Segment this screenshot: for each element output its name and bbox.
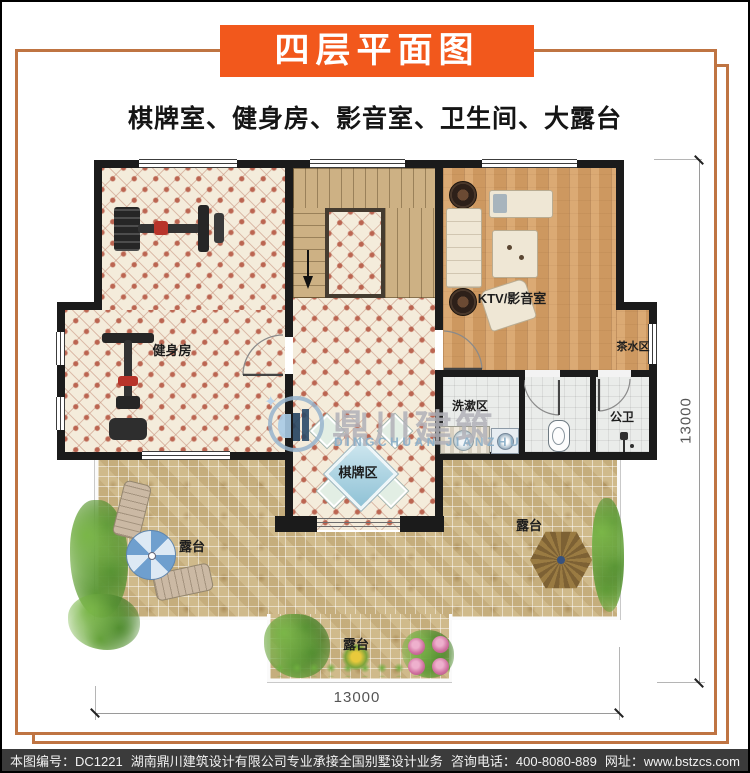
room-label-terrace-right: 露台	[507, 515, 551, 534]
wall-segment	[435, 167, 443, 330]
stair-direction-line	[307, 250, 309, 278]
watermark-latin: DINGCHUAN JIANZHU	[334, 435, 522, 449]
shrubs-bottom-left-icon	[68, 594, 140, 650]
dimension-extension-line	[654, 159, 702, 160]
toilet-bowl-icon	[552, 427, 565, 445]
gym-machine-part	[198, 205, 209, 252]
coffee-table-icon	[492, 230, 538, 278]
table-item-icon	[519, 255, 524, 260]
stair-down-arrow-icon	[303, 276, 313, 289]
stair-treads	[293, 168, 439, 208]
shower-head-icon	[620, 432, 628, 440]
gym-machine-part	[154, 221, 168, 235]
pillow-icon	[493, 194, 507, 213]
logo-arc-shape	[278, 414, 291, 438]
gym-machine-part	[138, 224, 200, 233]
wall-segment	[57, 302, 65, 460]
wall-segment	[94, 160, 102, 310]
bike-part	[118, 376, 138, 386]
patio-umbrella-icon	[126, 530, 176, 580]
shrubs-right-icon	[592, 498, 624, 612]
window	[56, 397, 65, 430]
footer-bar: 本图编号：DC1221 湖南鼎川建筑设计有限公司专业承接全国别墅设计业务 咨询电…	[2, 749, 748, 771]
dimension-line-bottom	[95, 713, 619, 714]
dimension-label-bottom: 13000	[327, 689, 387, 706]
sparkle-icon: ✦	[264, 392, 277, 412]
bike-part	[124, 340, 132, 402]
wall-pillar	[400, 516, 444, 532]
footer-plan-number: 本图编号：DC1221	[10, 751, 123, 770]
daybed-icon	[489, 190, 553, 218]
gym-machine-part	[114, 207, 140, 251]
terrace-middle	[285, 532, 442, 620]
watermark-logo-icon: ✦	[268, 396, 324, 452]
sofa-icon	[446, 208, 482, 288]
dimension-label-right: 13000	[678, 396, 695, 446]
window	[310, 159, 405, 168]
floor-plan: 健身房 KTV/影音室 茶水区 洗漱区 公卫 棋牌区 露台 露台 露台 ✦ 鼎川…	[2, 2, 750, 773]
footer-phone: 咨询电话：400-8080-889	[451, 751, 597, 770]
flower-pot-icon	[432, 636, 449, 653]
footer-company: 湖南鼎川建筑设计有限公司专业承接全国别墅设计业务	[131, 751, 443, 770]
room-label-gym: 健身房	[142, 340, 202, 359]
room-label-tea: 茶水区	[610, 338, 656, 354]
room-label-chess: 棋牌区	[328, 462, 388, 481]
flower-pot-icon	[408, 638, 425, 655]
logo-building-bar	[293, 413, 300, 441]
gym-machine-part	[214, 213, 224, 243]
shower-pole-icon	[623, 440, 625, 452]
footer-website: 网址：www.bstzcs.com	[605, 751, 740, 770]
umbrella-pole-icon	[148, 552, 156, 560]
wall-pillar	[275, 516, 317, 532]
drawing-sheet: 四层平面图 棋牌室、健身房、影音室、卫生间、大露台	[0, 0, 750, 773]
stair-treads	[385, 208, 439, 298]
window	[139, 159, 237, 168]
sliding-door	[317, 518, 400, 528]
gym-equipment-icon	[114, 205, 226, 253]
wall-segment	[285, 167, 293, 337]
bike-part	[116, 396, 140, 409]
table-item-icon	[507, 245, 512, 250]
wall-segment	[616, 160, 624, 310]
speaker-icon	[449, 181, 477, 209]
door-arc-gym	[242, 334, 284, 376]
stair-void	[325, 208, 385, 298]
dimension-line-right	[699, 160, 700, 684]
room-label-terrace-bottom: 露台	[334, 634, 378, 653]
room-label-public-wc: 公卫	[596, 408, 648, 425]
flower-pot-icon	[432, 658, 449, 675]
room-label-ktv: KTV/影音室	[467, 288, 557, 307]
page-title: 四层平面图	[220, 25, 534, 77]
dimension-extension-line	[619, 647, 620, 720]
shower-dot-icon	[630, 444, 634, 448]
flower-pot-icon	[408, 658, 425, 675]
window	[142, 451, 230, 460]
door-arc-toilet	[524, 380, 560, 416]
staircase	[293, 168, 439, 298]
bike-part	[109, 418, 147, 440]
door-opening	[598, 370, 631, 377]
window	[482, 159, 577, 168]
logo-building-bar	[302, 409, 309, 441]
room-gym-lower-floor	[65, 310, 285, 452]
gazebo-finial-icon	[557, 556, 565, 564]
toilet-icon	[548, 420, 570, 452]
shower-icon	[618, 432, 636, 452]
door-arc-ktv	[443, 330, 483, 370]
door-opening	[525, 370, 560, 377]
room-label-terrace-left: 露台	[170, 536, 214, 555]
window	[56, 332, 65, 365]
